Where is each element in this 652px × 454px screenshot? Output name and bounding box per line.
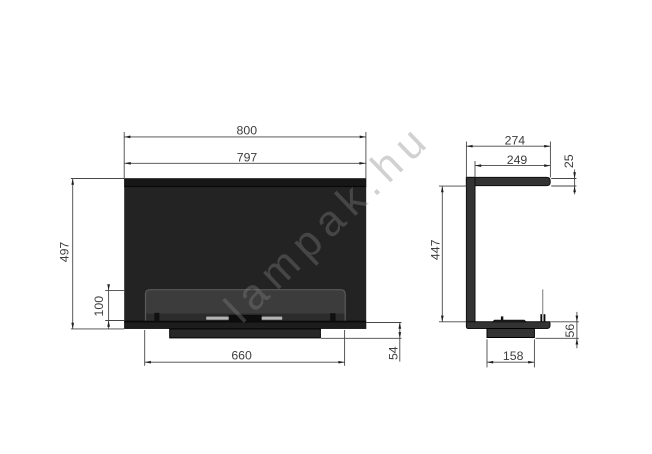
svg-text:497: 497: [58, 242, 72, 263]
svg-text:274: 274: [505, 134, 526, 148]
svg-text:56: 56: [563, 324, 577, 338]
svg-text:158: 158: [503, 349, 524, 363]
svg-text:800: 800: [237, 124, 258, 138]
svg-text:797: 797: [237, 151, 258, 165]
svg-text:447: 447: [429, 239, 443, 260]
svg-text:660: 660: [231, 348, 252, 362]
svg-text:100: 100: [92, 296, 106, 317]
svg-text:249: 249: [507, 153, 528, 167]
svg-text:54: 54: [387, 346, 401, 360]
svg-text:25: 25: [562, 154, 576, 168]
